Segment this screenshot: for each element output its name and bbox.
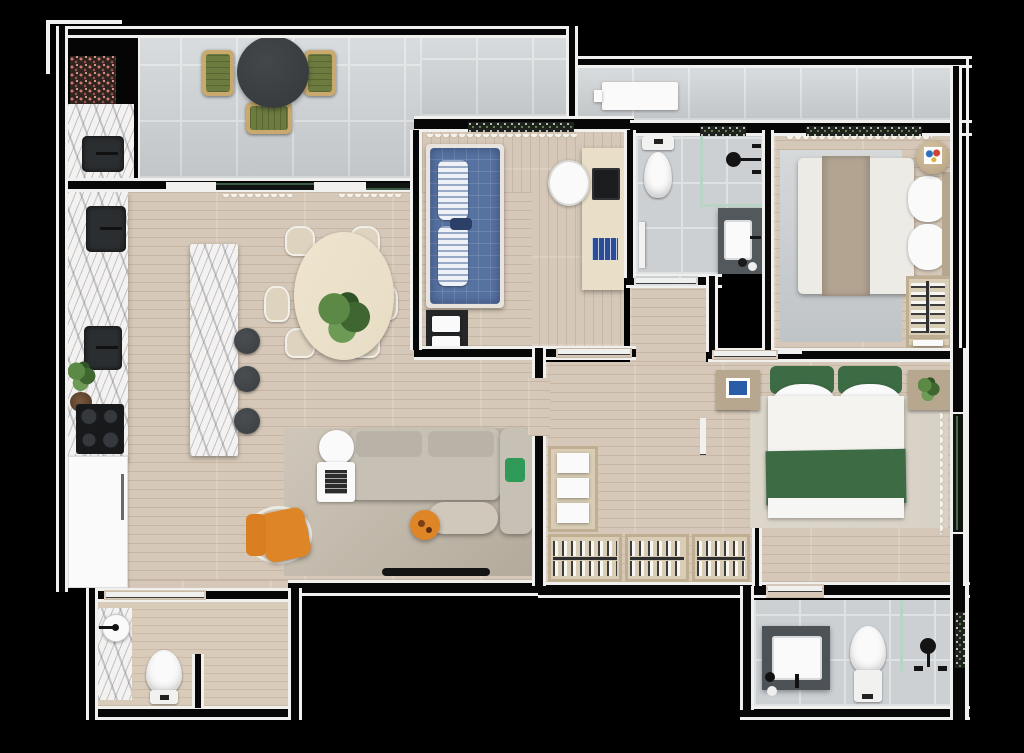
- double-bed-headboard: [942, 172, 950, 278]
- blue-books: [592, 238, 618, 260]
- bar-stool-1: [234, 328, 260, 354]
- tv: [382, 568, 490, 576]
- wall-single-bedroom-left: [410, 130, 422, 350]
- wall-single-bedroom-right: [624, 130, 636, 278]
- master-door-leaf: [714, 351, 776, 356]
- folded-linen-shelf: [906, 336, 952, 348]
- refrigerator: [68, 456, 128, 588]
- single-bedroom-door-leaf: [558, 349, 630, 354]
- master-spout-1: [914, 666, 923, 671]
- single-bedroom-curtain: [426, 134, 578, 143]
- wall-powder-bottom: [86, 706, 302, 720]
- outer-outline-topleft-h: [46, 20, 122, 24]
- master-flush-button: [862, 694, 873, 699]
- living-curtain-1: [222, 194, 292, 203]
- master-bath-faucet: [795, 674, 799, 688]
- wall-powder-right: [288, 588, 302, 720]
- outdoor-chair-left: [202, 50, 234, 96]
- bathroom-sink: [724, 220, 752, 260]
- folded-stack-3: [557, 503, 589, 523]
- bathroom-toilet: [644, 152, 672, 198]
- master-green-throw: [766, 449, 907, 505]
- orange-table-decor: [418, 520, 425, 527]
- floor-plan: [0, 0, 1024, 753]
- island-counter: [190, 244, 238, 456]
- shower-head: [726, 152, 741, 167]
- outer-outline-topleft-v: [46, 20, 50, 74]
- towel-roll-dark: [738, 258, 747, 267]
- master-window: [953, 412, 963, 534]
- kitchen-faucet-2-icon: [96, 346, 118, 349]
- framed-photo: [726, 378, 750, 398]
- flower-planter: [70, 56, 116, 104]
- bed-throw: [450, 218, 472, 230]
- window-planter-bath: [700, 126, 746, 136]
- cooktop: [76, 404, 124, 454]
- wall-master-bath-left: [740, 586, 754, 710]
- wall-terrace-step: [566, 26, 578, 128]
- wall-art-tile: [924, 147, 942, 164]
- wall-bath-bed2-top: [630, 120, 972, 136]
- folded-stack-1: [557, 453, 589, 473]
- kitchen-herb-plant: [68, 360, 96, 392]
- powder-toilet: [146, 650, 182, 694]
- window-planter-double: [806, 126, 922, 136]
- orange-side-table: [410, 510, 440, 540]
- wall-closet-master-divider: [752, 528, 762, 586]
- hanger-rack-1: [548, 534, 622, 582]
- shower-arm: [740, 158, 761, 161]
- towel-roll-white: [748, 262, 757, 271]
- wall-left-outer: [56, 26, 68, 592]
- kitchen-faucet-1-icon: [100, 227, 122, 230]
- bathroom-door-leaf: [636, 278, 696, 283]
- wall-terrace-top: [56, 26, 572, 38]
- double-bedroom-door-leaf: [778, 349, 802, 354]
- bar-stool-3: [234, 408, 260, 434]
- orange-table-decor2: [426, 527, 432, 533]
- refrigerator-handle: [121, 474, 124, 520]
- living-curtain-2: [338, 194, 402, 203]
- wall-powder-stub: [192, 654, 204, 708]
- bathroom-faucet: [750, 236, 761, 239]
- window-planter-single: [468, 122, 574, 132]
- coffee-table-round: [319, 430, 354, 465]
- closet-hangers: [911, 281, 926, 333]
- master-spout-2: [938, 666, 947, 671]
- terrace-door-frame: [166, 182, 216, 191]
- powder-flush-button: [160, 695, 169, 700]
- grill-faucet-icon: [96, 152, 118, 155]
- hall-upper-floor: [630, 288, 706, 362]
- taupe-runner: [822, 156, 870, 296]
- master-curtain: [940, 412, 949, 534]
- closet-door-leaf: [700, 418, 706, 454]
- body-spout-1: [752, 144, 761, 148]
- shower-glass-vertical: [700, 132, 703, 206]
- hanger-rack-3: [692, 534, 750, 582]
- striped-pillow-1: [438, 160, 468, 220]
- passage-living-corridor: [528, 378, 550, 436]
- condenser-unit: [602, 82, 678, 110]
- hanging-towel: [639, 222, 645, 268]
- towel-stack-1: [432, 316, 460, 332]
- outer-outline-right: [966, 58, 969, 718]
- wall-bathroom-right: [762, 130, 774, 352]
- sofa-cushion-1: [356, 431, 422, 457]
- bar-stool-2: [234, 366, 260, 392]
- orange-footrest: [246, 514, 266, 556]
- closet-shelf-unit: [548, 446, 598, 532]
- bathroom-flush-button: [654, 139, 663, 144]
- powder-door-leaf: [106, 592, 204, 597]
- sliding-door-frame: [314, 182, 366, 191]
- master-towel-white: [767, 686, 777, 696]
- green-pillow: [505, 458, 525, 482]
- hanger-rack-2: [625, 534, 689, 582]
- closet-hangers-2: [930, 281, 945, 333]
- terrace-floor-step: [420, 38, 566, 116]
- wall-double-bedroom-right: [950, 66, 962, 350]
- outdoor-round-table: [237, 36, 309, 108]
- centerpiece-plant: [318, 290, 372, 344]
- body-spout-2: [752, 170, 761, 174]
- master-foot-fold: [768, 498, 904, 518]
- wall-living-terrace: [56, 178, 422, 192]
- master-shower-stem: [927, 653, 930, 667]
- double-bedroom-curtain: [786, 136, 932, 145]
- sliding-glass-door-1: [216, 183, 314, 190]
- book-stack: [325, 470, 347, 494]
- master-bath-toilet: [850, 626, 886, 674]
- wall-master-right: [950, 348, 966, 586]
- laptop: [592, 168, 620, 200]
- wall-hall-right: [706, 276, 718, 352]
- wall-single-bedroom-top: [414, 116, 634, 132]
- wall-terrace-right-top: [566, 56, 972, 68]
- striped-pillow-2: [438, 226, 468, 286]
- master-shower-glass: [900, 600, 903, 672]
- master-bath-door-leaf: [768, 586, 822, 591]
- folded-stack-2: [557, 478, 589, 498]
- sofa-cushion-2: [428, 431, 494, 457]
- wall-powder-left: [86, 588, 98, 720]
- wall-master-bath-bottom: [740, 706, 970, 720]
- closet-bar: [926, 281, 929, 333]
- wall-living-closet: [532, 436, 546, 586]
- master-towel-dark: [765, 672, 775, 682]
- wall-corridor-stub: [532, 348, 546, 378]
- nightstand-plant: [918, 376, 940, 402]
- condenser-pipe: [594, 90, 602, 102]
- dining-chair-w: [264, 286, 290, 322]
- bedroom-hanger-closet: [906, 276, 952, 338]
- desk-chair: [548, 160, 590, 206]
- shower-glass-horizontal: [700, 204, 762, 207]
- wall-living-bottom: [288, 580, 546, 596]
- bath-window-greenery: [955, 612, 965, 668]
- powder-faucet-dot: [112, 624, 119, 631]
- master-shower-head: [920, 638, 936, 654]
